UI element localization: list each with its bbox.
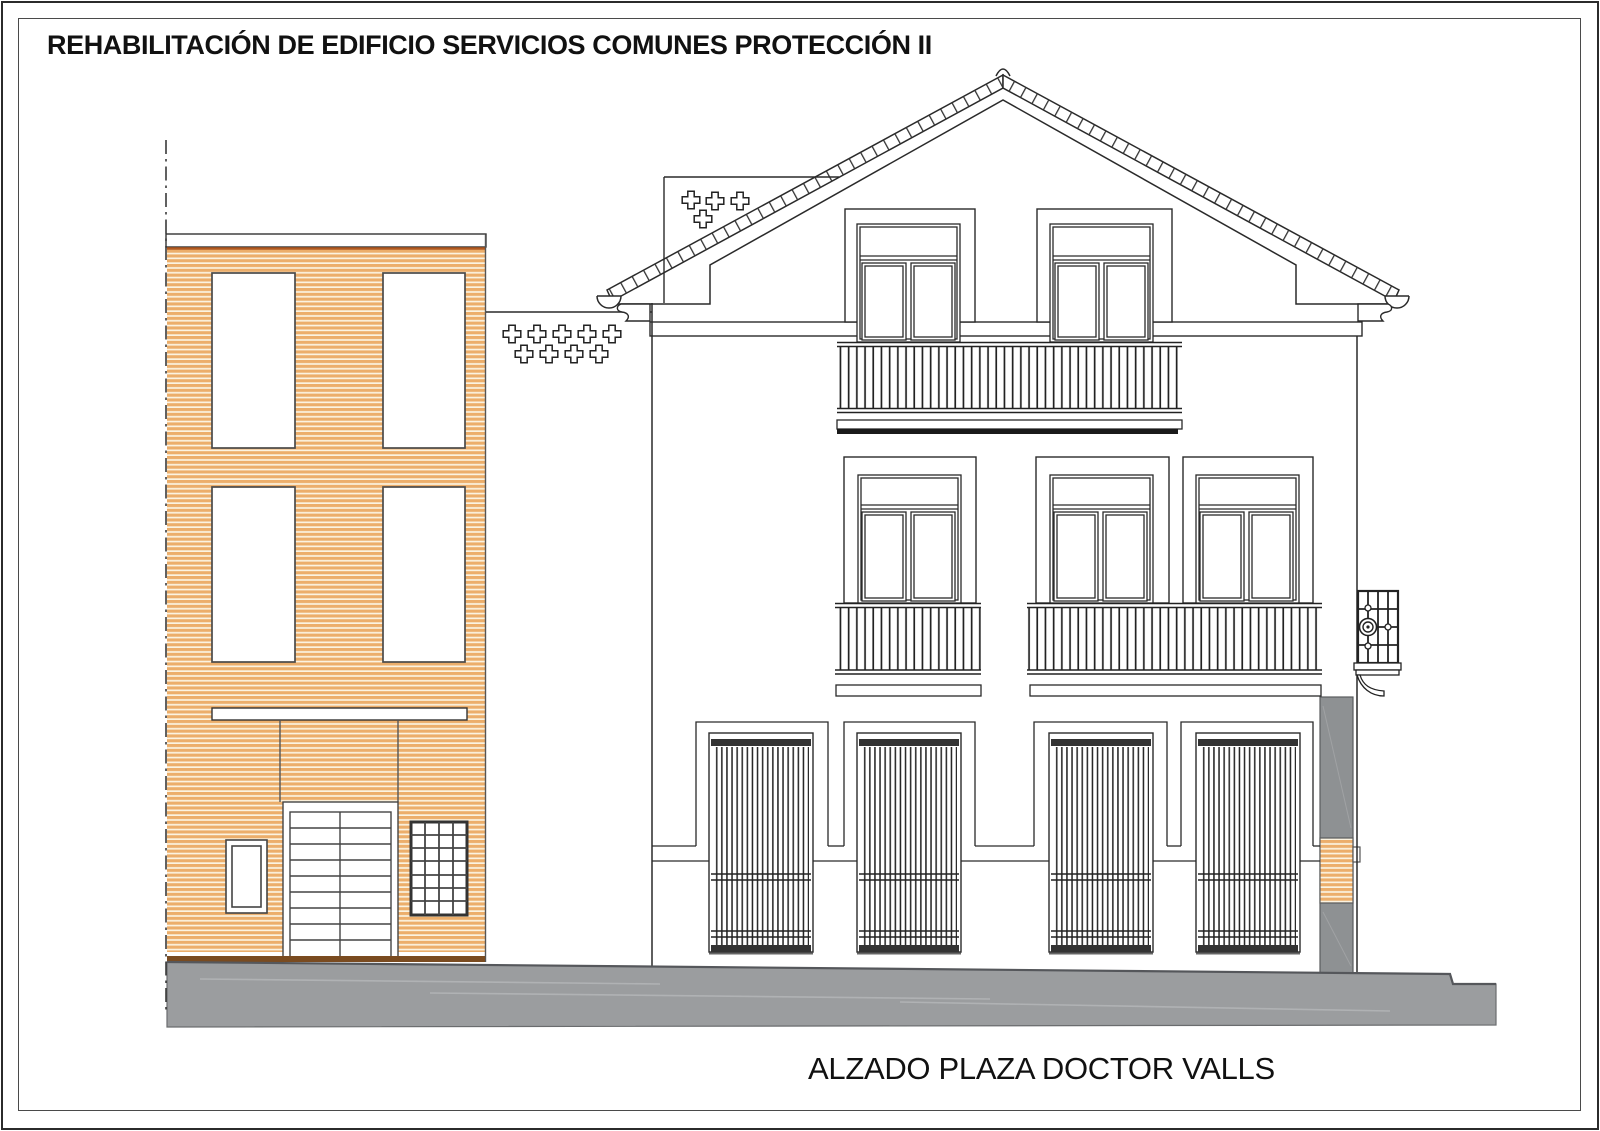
window-grille	[857, 733, 961, 954]
window	[383, 273, 465, 448]
drawing-caption: ALZADO PLAZA DOCTOR VALLS	[808, 1051, 1275, 1087]
balcony-railing	[835, 604, 981, 675]
balcony-railing	[1027, 604, 1322, 675]
balcony-railing	[837, 343, 1182, 413]
elevation-drawing	[0, 0, 1600, 1131]
left-building-lintel-band	[212, 708, 467, 720]
attic-wing	[664, 177, 839, 303]
cornice-corbel-right	[1358, 304, 1392, 321]
left-building-coping	[166, 234, 486, 247]
window	[383, 487, 465, 662]
balcony-door	[1050, 224, 1153, 342]
window-grille	[1049, 733, 1153, 954]
window-grille	[709, 733, 813, 954]
side-door	[226, 840, 267, 913]
balcony-slab	[1030, 685, 1321, 696]
neighbor-hatched-patch	[1320, 838, 1353, 903]
right-building	[597, 69, 1409, 981]
drawing-sheet: REHABILITACIÓN DE EDIFICIO SERVICIOS COM…	[0, 0, 1600, 1131]
balcony-door	[1050, 475, 1153, 603]
balcony-door	[857, 224, 960, 342]
reja-corbel	[1357, 675, 1384, 696]
window	[212, 487, 295, 662]
sheet-title: REHABILITACIÓN DE EDIFICIO SERVICIOS COM…	[47, 30, 932, 61]
balcony-door	[1196, 475, 1299, 603]
gable-roof	[597, 69, 1409, 308]
grid-window	[411, 822, 467, 915]
cornice-corbel-left	[617, 304, 650, 321]
second-floor	[835, 457, 1322, 696]
left-building-base-sill	[167, 956, 485, 962]
garage-door	[283, 802, 398, 959]
balcony-slab	[836, 685, 981, 696]
window-grille	[1196, 733, 1300, 954]
balcony-slab-shadow	[837, 429, 1178, 434]
left-building	[166, 234, 486, 962]
cross-ornaments	[503, 325, 621, 363]
side-reja	[1354, 591, 1401, 696]
reja-sill	[1354, 663, 1401, 670]
ground-sidewalk	[167, 962, 1496, 1027]
window	[212, 273, 295, 448]
balcony-door	[858, 475, 961, 603]
balcony-slab	[837, 420, 1182, 429]
